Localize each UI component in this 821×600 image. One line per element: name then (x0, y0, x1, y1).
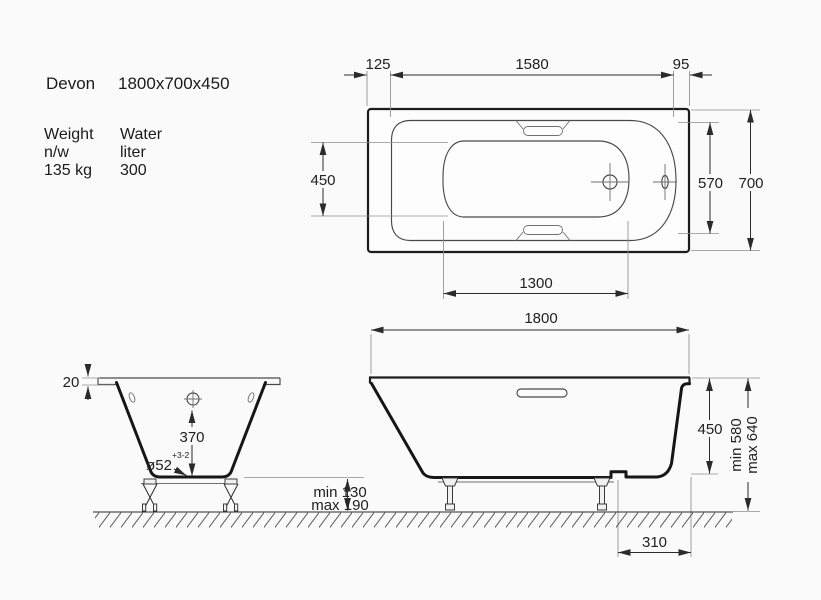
dim-text-offset-left: 125 (365, 56, 390, 73)
dim-text-clearance-max: max 190 (311, 497, 369, 514)
top-view-width-dimensions: 570 700 (678, 110, 766, 251)
grip-hole-left (128, 392, 136, 403)
weight-label: Weight (44, 126, 94, 143)
water-unit-label: liter (120, 144, 146, 161)
weight-value: 135 kg (44, 162, 92, 179)
top-view-length-dimensions: 125 1580 95 (344, 56, 712, 117)
front-view-length-dimension: 1800 (371, 310, 689, 374)
drain-leader-line (174, 469, 187, 476)
drain-depth-dimension: 370 (177, 411, 207, 477)
overflow-symbol-section (184, 390, 202, 408)
drawing-svg: Devon 1800x700x450 Weight Water n/w lite… (0, 0, 821, 600)
extension-lines-1800 (371, 334, 689, 374)
dim-text-height-min: min 580 (728, 418, 745, 471)
front-view (369, 378, 690, 511)
floor (93, 512, 733, 528)
drain-diameter-label: ø52 +3-2 (146, 450, 189, 476)
dim-text-drain-diameter: ø52 (146, 457, 172, 474)
dim-text-drain-depth: 370 (179, 429, 204, 446)
water-label: Water (120, 126, 163, 143)
overflow-slot (517, 389, 567, 397)
tub-body-profile (372, 384, 690, 478)
rim-height-dimension: 20 (63, 364, 114, 400)
dim-text-well-width: 450 (310, 172, 335, 189)
front-foot-right (594, 478, 610, 510)
floor-hatching (95, 513, 732, 529)
dim-text-overall-width: 700 (738, 175, 763, 192)
rim-band (98, 378, 280, 385)
dim-text-drain-tolerance: +3-2 (172, 450, 190, 460)
top-view (368, 109, 689, 252)
model-name: Devon (46, 74, 95, 93)
dim-text-well-length: 1300 (519, 275, 552, 292)
dim-text-offset-right: 95 (673, 56, 690, 73)
dim-text-rim-height: 20 (63, 374, 80, 391)
dim-text-drain-offset: 310 (642, 534, 667, 551)
tub-outer-rim (368, 109, 689, 252)
end-foot-right (224, 479, 239, 511)
dim-text-overall-length: 1800 (524, 310, 557, 327)
dim-text-rim-length: 1580 (515, 56, 548, 73)
dim-text-opening-width: 570 (698, 175, 723, 192)
weight-unit-label: n/w (44, 144, 69, 161)
water-value: 300 (120, 162, 147, 179)
front-foot-left (442, 478, 458, 510)
spec-block: Devon 1800x700x450 Weight Water n/w lite… (44, 74, 230, 179)
dim-text-depth: 450 (697, 421, 722, 438)
dim-text-height-max: max 640 (744, 416, 761, 474)
floor-clearance-dimension: min 130 max 190 (244, 478, 369, 515)
bathtub-technical-drawing: Devon 1800x700x450 Weight Water n/w lite… (0, 0, 821, 600)
model-dimensions: 1800x700x450 (118, 74, 230, 93)
grip-hole-right (247, 392, 255, 403)
end-foot-left (143, 479, 158, 511)
front-view-height-dimensions: 450 min 580 max 640 (691, 378, 761, 512)
